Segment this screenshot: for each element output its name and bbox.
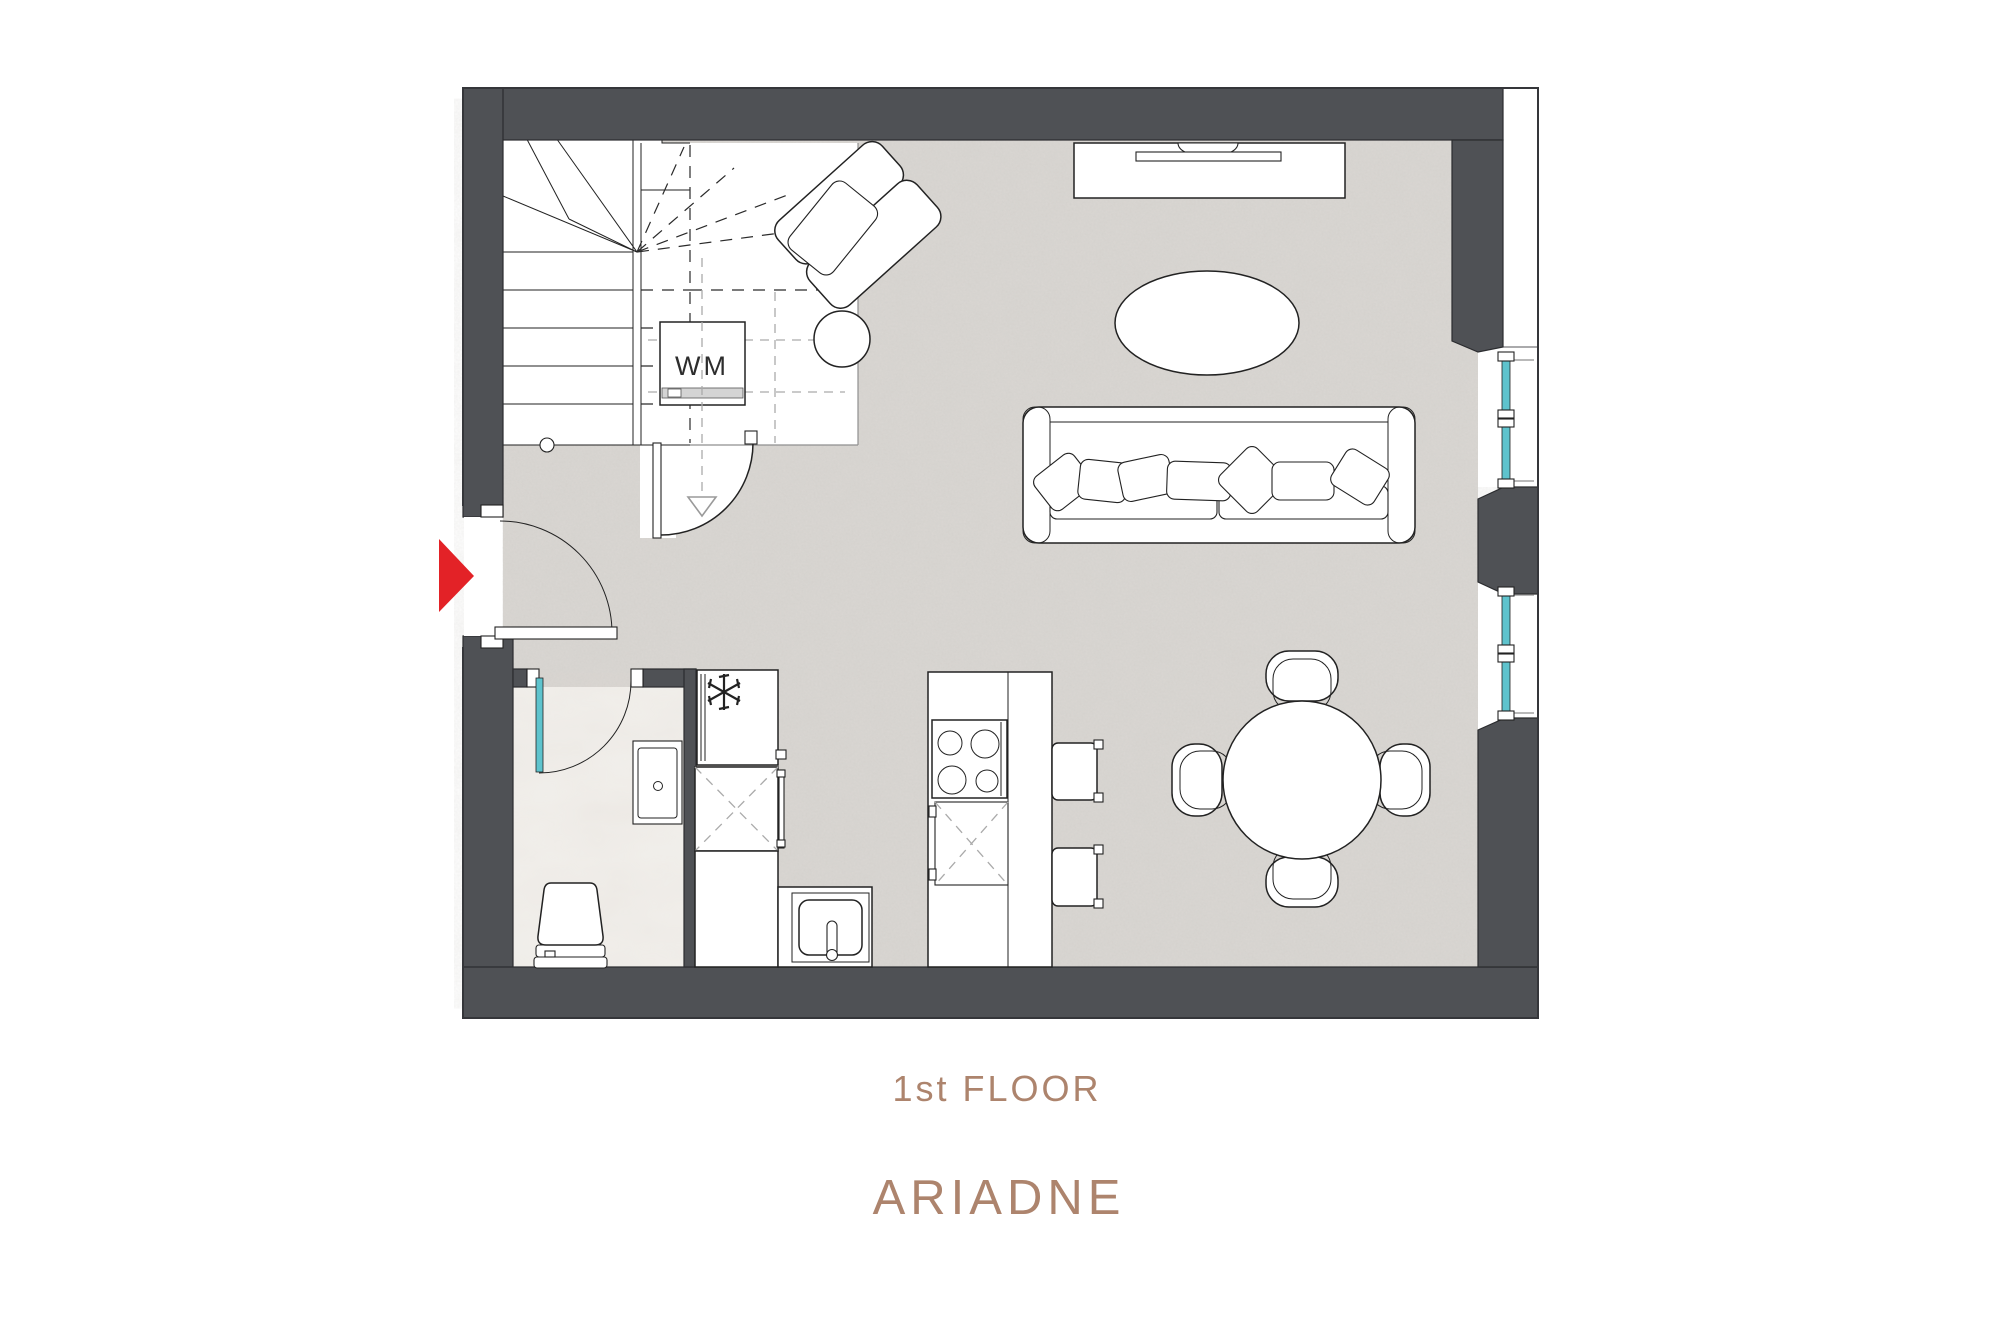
- sofa: [1023, 407, 1415, 543]
- coffee-table-oval: [1115, 271, 1299, 375]
- hob-4-burner: [932, 720, 1007, 798]
- wall-left-lower: [463, 636, 513, 1018]
- wall-right-upper-pier: [1452, 140, 1503, 352]
- base-cabinet: [695, 851, 778, 967]
- toilet: [534, 883, 607, 968]
- floor-plan-drawing: WM: [0, 0, 2000, 1333]
- floor-plan-page: WM: [0, 0, 2000, 1333]
- base-cabinet-x: [695, 767, 785, 851]
- island-cabinet-x: [929, 802, 1008, 885]
- side-table-round: [814, 311, 870, 367]
- kitchen-sink: [778, 887, 872, 967]
- bar-stool: [1052, 740, 1103, 802]
- dining-table-round: [1223, 701, 1381, 859]
- fridge-freezer: [697, 670, 786, 765]
- bathroom-wall-left-seg: [513, 669, 527, 687]
- bathroom-wall-stub: [684, 669, 696, 967]
- wall-right-mid-pier: [1478, 487, 1538, 594]
- wall-top: [463, 88, 1503, 140]
- wall-right-lower-pier: [1478, 718, 1538, 967]
- wall-left-upper: [463, 88, 503, 517]
- tv-console: [1074, 143, 1345, 198]
- bar-stool: [1052, 845, 1103, 908]
- washbasin: [633, 741, 682, 824]
- kitchen-island: [928, 672, 1052, 967]
- plan-name: ARIADNE: [873, 1171, 1126, 1225]
- wall-bottom: [463, 967, 1538, 1018]
- floor-label: 1st FLOOR: [892, 1068, 1101, 1109]
